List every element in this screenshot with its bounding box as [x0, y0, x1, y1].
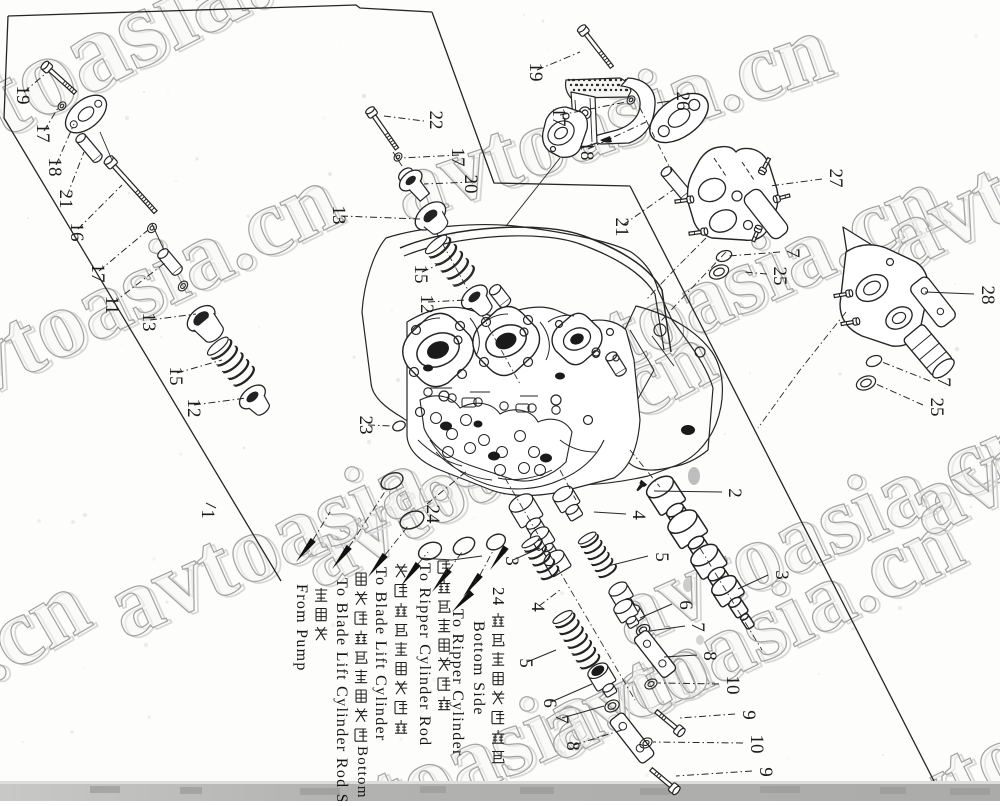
- svg-text:21: 21: [55, 190, 76, 209]
- svg-text:17: 17: [447, 148, 468, 167]
- svg-text:16: 16: [66, 223, 87, 242]
- svg-text:Bottom Side: Bottom Side: [470, 621, 487, 716]
- svg-text:22: 22: [425, 111, 446, 130]
- svg-text:19: 19: [525, 63, 546, 82]
- svg-text:6: 6: [539, 698, 560, 708]
- svg-text:4: 4: [527, 602, 548, 612]
- svg-text:1: 1: [197, 509, 218, 519]
- svg-text:7: 7: [687, 622, 708, 632]
- svg-text:8: 8: [699, 651, 720, 661]
- svg-text:6: 6: [675, 600, 696, 610]
- svg-text:8: 8: [562, 741, 583, 751]
- svg-text:2: 2: [724, 488, 745, 498]
- svg-text:17: 17: [87, 264, 108, 283]
- svg-text:5: 5: [651, 552, 672, 562]
- svg-text:17: 17: [548, 108, 569, 127]
- svg-text:24: 24: [422, 505, 443, 525]
- svg-text:28: 28: [977, 286, 998, 305]
- svg-text:23: 23: [355, 416, 376, 435]
- svg-text:7: 7: [782, 248, 803, 258]
- svg-text:24: 24: [489, 587, 508, 607]
- svg-text:3: 3: [501, 556, 522, 566]
- svg-text:18: 18: [576, 142, 597, 161]
- svg-text:26: 26: [672, 92, 693, 111]
- svg-text:11: 11: [101, 296, 122, 314]
- svg-text:18: 18: [44, 158, 65, 177]
- svg-text:Bottom: Bottom: [354, 746, 370, 799]
- svg-text:To Ripper Cylinder Rod: To Ripper Cylinder Rod: [416, 563, 433, 746]
- svg-text:25: 25: [769, 267, 790, 286]
- svg-text:7: 7: [933, 377, 954, 387]
- svg-text:15: 15: [165, 367, 186, 386]
- svg-text:4: 4: [628, 510, 649, 520]
- svg-text:13: 13: [138, 313, 159, 332]
- svg-text:10: 10: [746, 735, 767, 754]
- svg-text:To Ripper Cylinder: To Ripper Cylinder: [449, 609, 466, 757]
- svg-text:15: 15: [410, 265, 431, 284]
- svg-text:To Blade Lift Cylinder Rod S: To Blade Lift Cylinder Rod S: [333, 578, 350, 801]
- svg-text:9: 9: [755, 767, 776, 777]
- svg-text:20: 20: [460, 175, 481, 194]
- svg-text:12: 12: [183, 399, 204, 418]
- svg-text:19: 19: [12, 86, 33, 105]
- svg-text:25: 25: [926, 398, 947, 417]
- svg-text:To Blade Lift Cylinder: To Blade Lift Cylinder: [372, 567, 389, 742]
- svg-text:7: 7: [551, 714, 572, 724]
- svg-text:27: 27: [825, 169, 846, 188]
- svg-text:3: 3: [771, 570, 792, 580]
- svg-text:9: 9: [738, 710, 759, 720]
- svg-text:10: 10: [722, 676, 743, 695]
- svg-text:5: 5: [515, 658, 536, 668]
- svg-text:12: 12: [416, 295, 437, 314]
- svg-text:13: 13: [328, 206, 349, 225]
- svg-text:21: 21: [611, 218, 632, 237]
- svg-text:From Pump: From Pump: [293, 584, 310, 672]
- svg-text:17: 17: [32, 124, 53, 143]
